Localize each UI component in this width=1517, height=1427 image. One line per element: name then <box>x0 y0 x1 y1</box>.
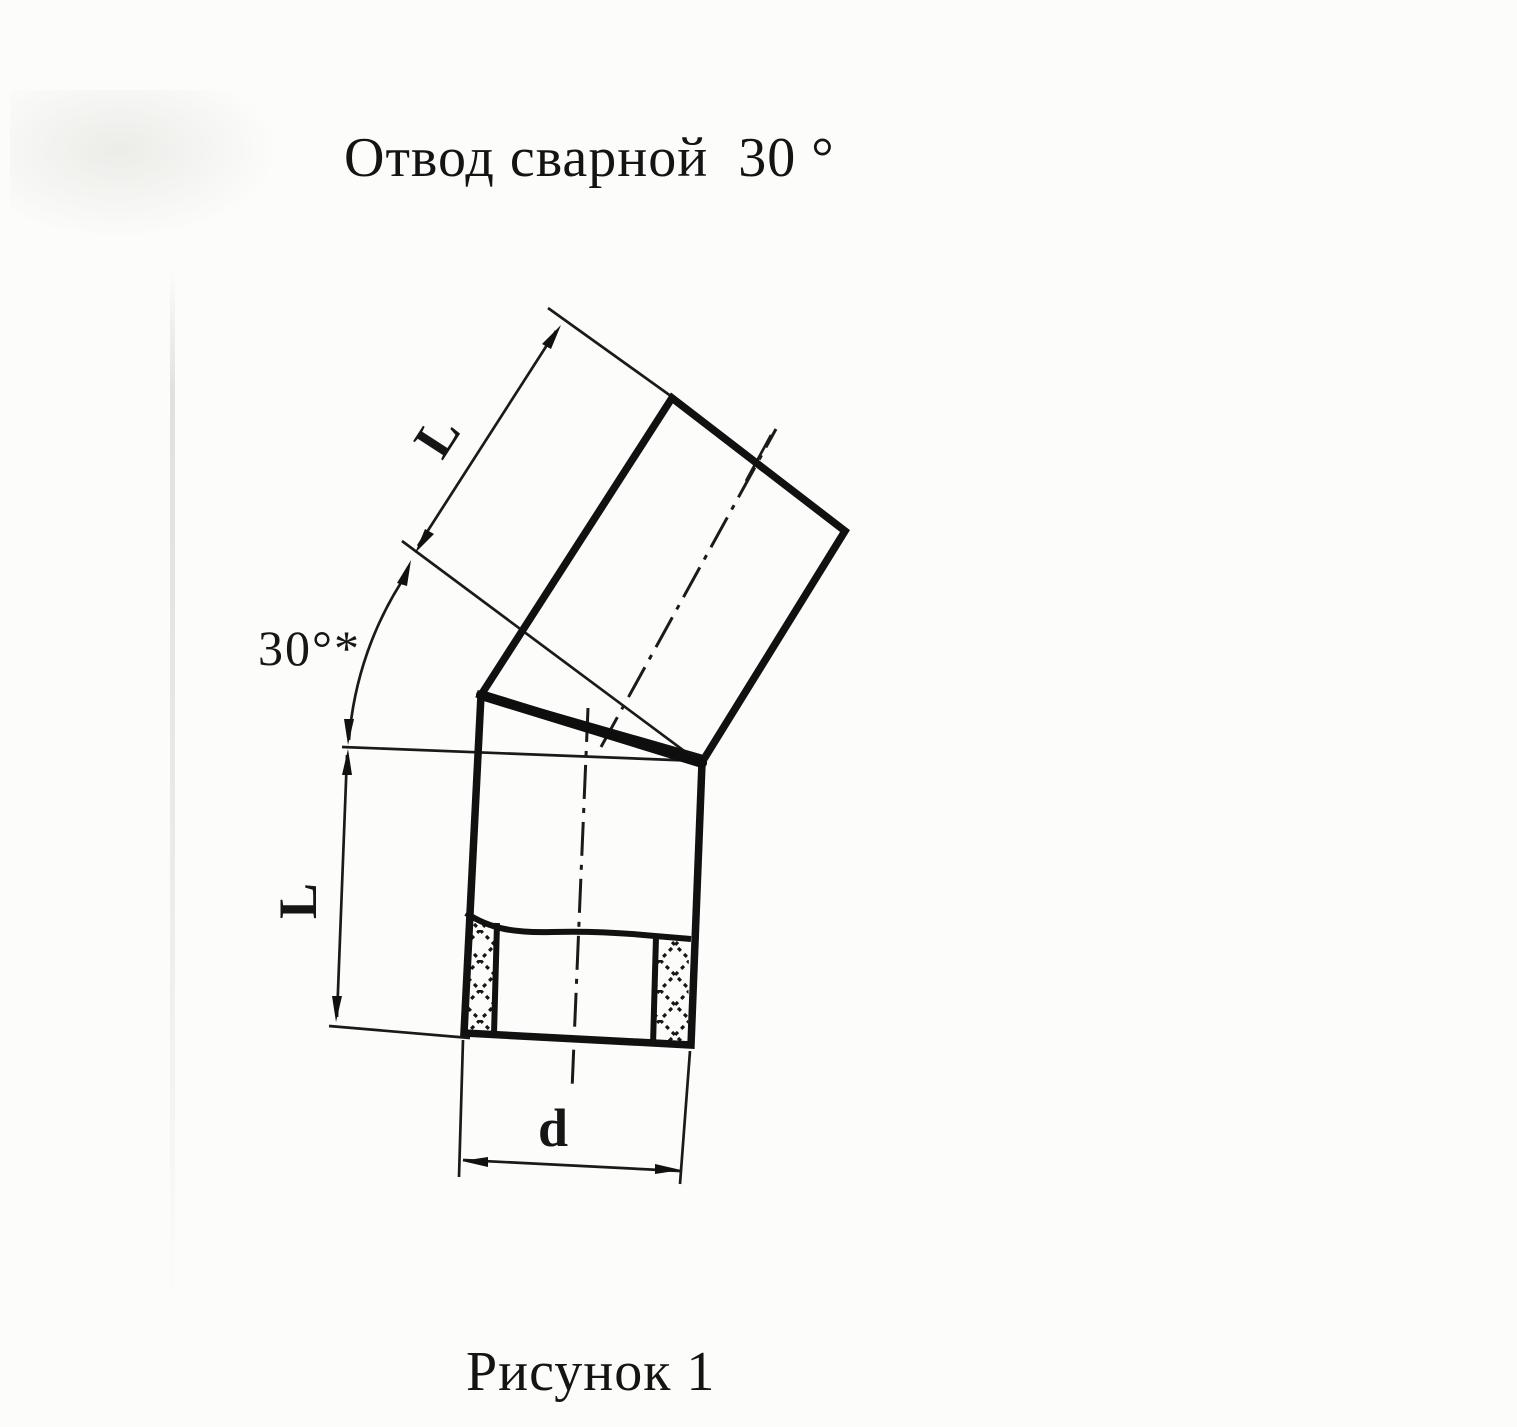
arrowhead <box>397 560 411 586</box>
arrowhead <box>332 996 342 1022</box>
scanned-drawing-page: Отвод сварной 30 ° <box>0 0 1517 1427</box>
arrowhead <box>415 529 434 553</box>
arrowhead <box>542 325 561 349</box>
arrowhead <box>655 1164 681 1174</box>
dimension-bend-angle: 30°* <box>258 560 411 745</box>
upper-pipe-segment <box>481 398 845 759</box>
dimension-lower-length: L <box>268 749 352 1022</box>
ext-line-d-left <box>459 1040 463 1177</box>
elbow-technical-drawing: L 30°* L d <box>0 0 1517 1427</box>
figure-caption: Рисунок 1 <box>466 1340 715 1404</box>
ext-line-bottom-left <box>329 1026 470 1038</box>
ext-line-from-vertex <box>402 541 699 762</box>
dim-line-lower-L <box>337 755 347 1017</box>
ext-line-d-right <box>680 1051 690 1184</box>
dimension-diameter: d <box>462 1098 681 1174</box>
dimension-upper-length: L <box>402 325 561 553</box>
inner-wall-line-left <box>494 923 497 1034</box>
label-upper-length: L <box>402 405 472 468</box>
label-bend-angle: 30°* <box>258 620 361 676</box>
arrowhead <box>342 749 352 775</box>
inner-wall-line-right <box>653 937 656 1045</box>
arrowhead <box>462 1157 488 1167</box>
label-diameter: d <box>538 1098 568 1158</box>
arrowhead <box>344 719 354 745</box>
dim-line-d <box>463 1160 680 1171</box>
label-lower-length: L <box>268 883 328 919</box>
hatch-right-wall <box>654 938 689 1044</box>
centerline-lower-segment <box>572 708 588 1090</box>
ext-line-top-edge <box>548 308 675 399</box>
